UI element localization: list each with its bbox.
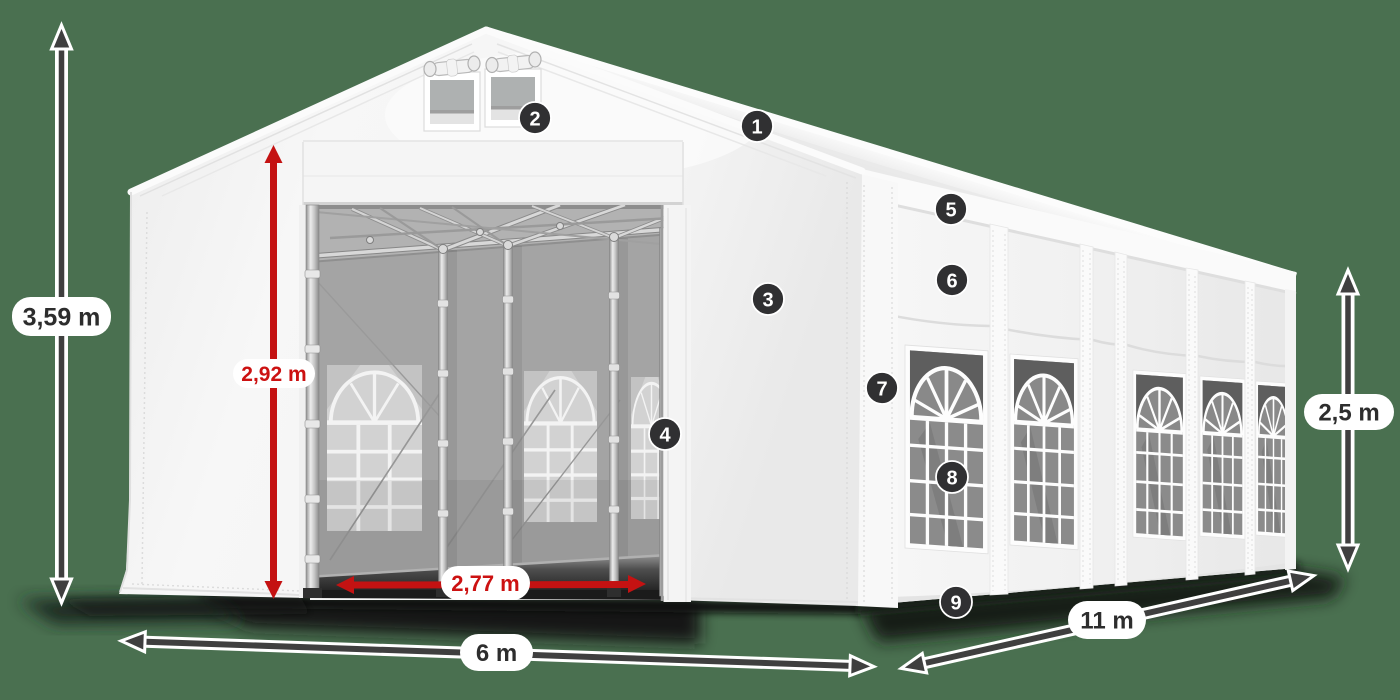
svg-text:2,77 m: 2,77 m — [451, 571, 520, 596]
svg-text:5: 5 — [945, 200, 956, 222]
svg-text:3,59 m: 3,59 m — [23, 304, 101, 332]
svg-text:2: 2 — [529, 109, 540, 131]
svg-text:3: 3 — [762, 290, 773, 312]
svg-text:4: 4 — [659, 425, 671, 447]
svg-text:6: 6 — [946, 271, 957, 293]
svg-text:2,5 m: 2,5 m — [1318, 400, 1379, 427]
svg-text:2,92 m: 2,92 m — [241, 363, 306, 386]
svg-text:7: 7 — [876, 379, 887, 401]
svg-text:1: 1 — [751, 117, 762, 139]
svg-text:11 m: 11 m — [1080, 608, 1133, 635]
svg-text:9: 9 — [950, 593, 961, 615]
svg-text:6 m: 6 m — [476, 640, 517, 667]
svg-text:8: 8 — [946, 468, 957, 490]
